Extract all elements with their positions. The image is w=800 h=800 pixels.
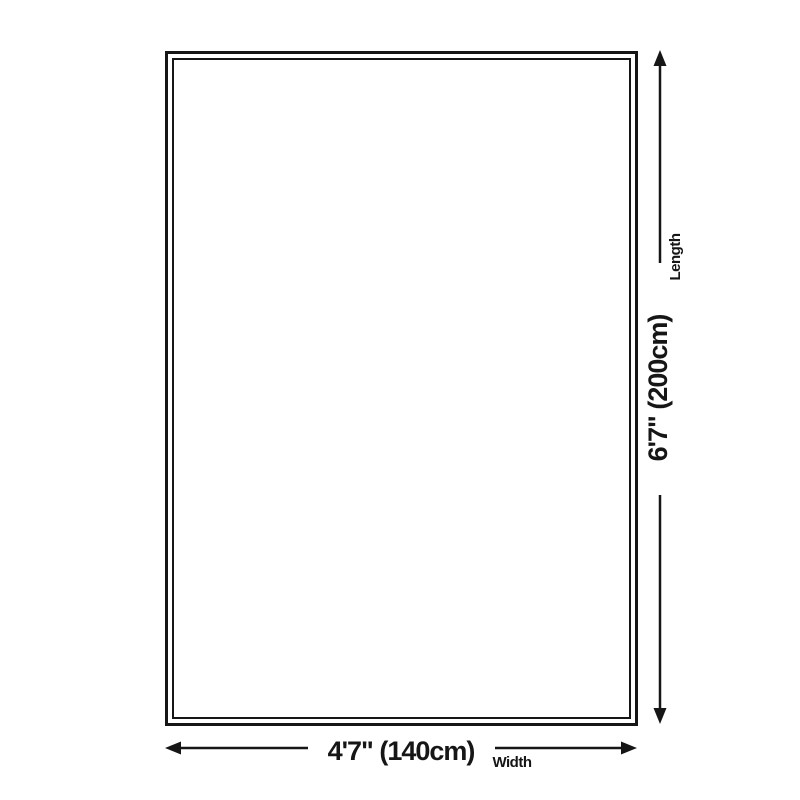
dimension-diagram: 6'7" (200cm) Length 4'7" (140cm) Width xyxy=(0,0,800,800)
rug-inner-outline xyxy=(172,58,631,719)
rug-outline xyxy=(165,51,638,726)
width-label: Width xyxy=(482,754,542,772)
length-label: Length xyxy=(667,217,685,297)
width-value: 4'7" (140cm) xyxy=(301,736,501,766)
length-value: 6'7" (200cm) xyxy=(643,278,673,498)
